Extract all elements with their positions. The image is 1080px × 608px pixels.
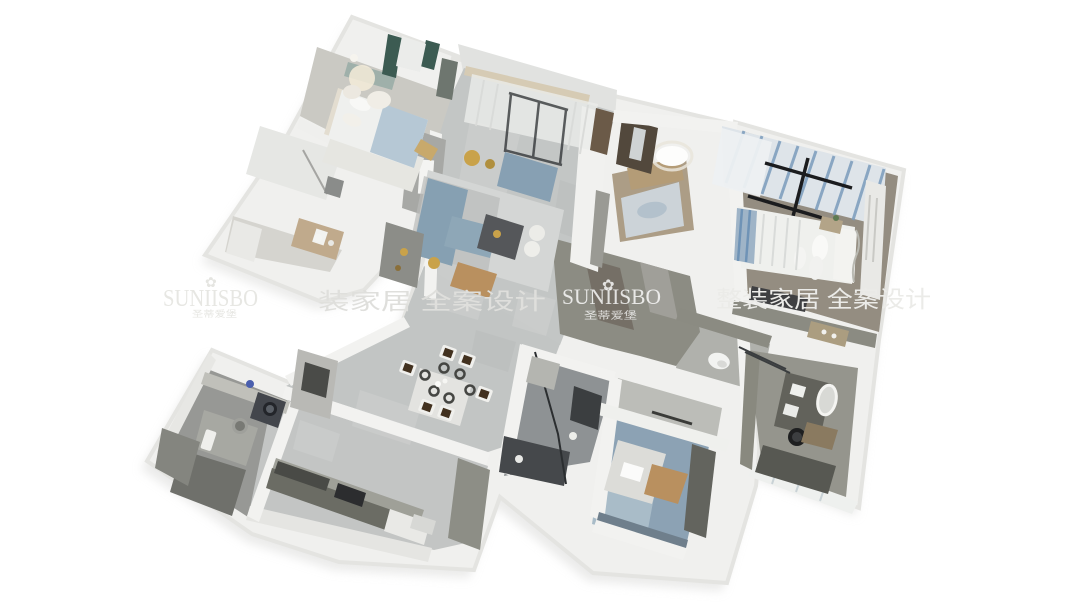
svg-text:✿: ✿	[602, 278, 615, 294]
svg-text:圣蒂爱堡: 圣蒂爱堡	[192, 308, 237, 319]
svg-text:圣蒂爱堡: 圣蒂爱堡	[584, 309, 637, 322]
svg-text:整装家居 全案设计: 整装家居 全案设计	[716, 287, 931, 312]
svg-text:装家居 全案设计: 装家居 全案设计	[318, 289, 546, 314]
svg-text:✿: ✿	[205, 276, 217, 291]
